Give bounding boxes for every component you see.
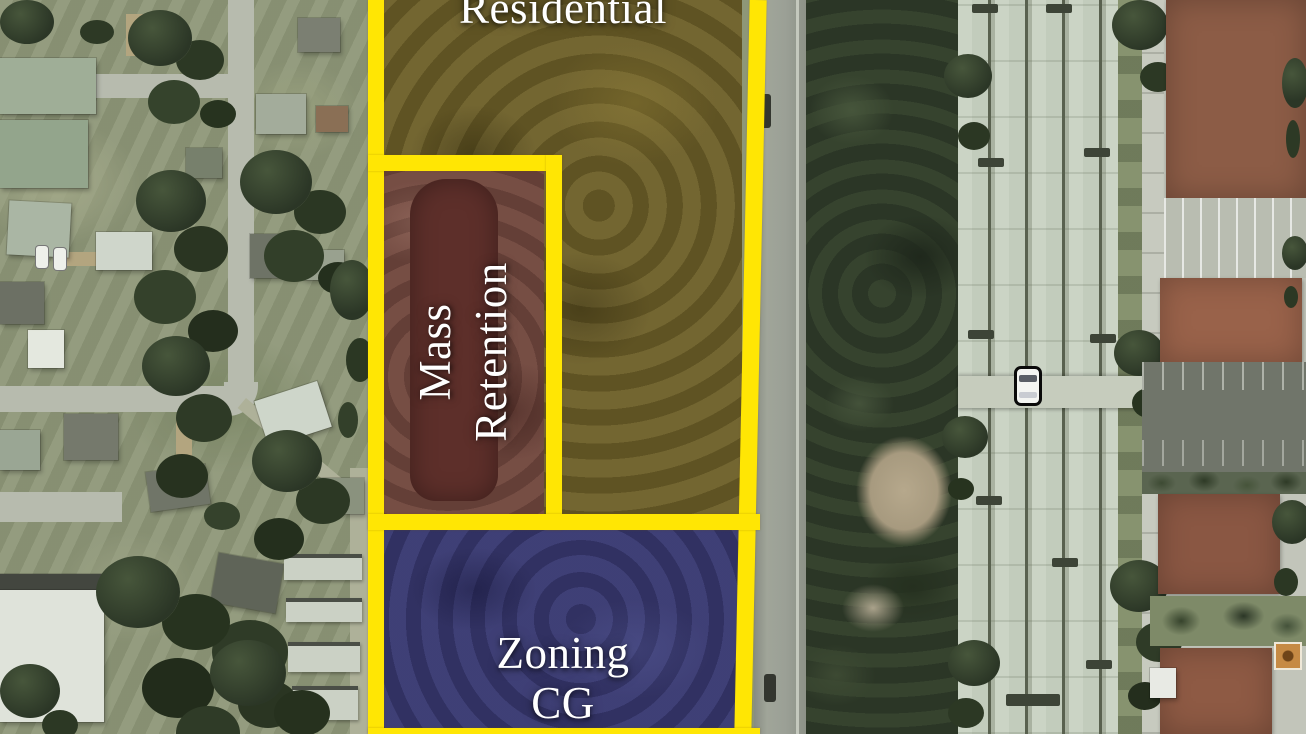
house-roof [250,234,304,278]
boundary-zoning-cg-top [368,514,760,530]
storage-door [978,158,1004,167]
house-roof [96,232,152,270]
car [36,246,48,268]
tree-cluster [1282,236,1306,270]
storage-driveway [958,376,1164,408]
tree-cluster [948,640,1000,686]
storage-door [972,4,998,13]
boundary-mass-retention-top [368,155,562,171]
parking-stub [0,492,122,522]
trailer-roof [284,554,362,580]
label-line: Retention [463,192,519,512]
label-line: Zoning [384,628,742,678]
storage-door [1046,4,1072,13]
house-roof [146,464,211,512]
house-roof [64,414,118,460]
building-roof [1160,278,1302,362]
tree-cluster [1112,0,1168,50]
trailer-roof [292,686,358,720]
house-roof [0,120,88,188]
utility-marker [1274,642,1302,670]
house-roof [186,148,222,178]
clearing [856,436,952,546]
tree-cluster [240,150,312,214]
label-line: Mass [407,192,463,512]
small-structure [1150,668,1176,698]
parcel-boundary-left [368,0,384,734]
storage-door [968,330,994,339]
tree-cluster [0,0,54,44]
storage-door [1084,148,1110,157]
parcel-boundary-bottom [368,728,760,734]
label-line: CG [384,678,742,728]
house-roof [0,430,40,470]
car [764,674,776,702]
trailer-roof [286,598,362,622]
tree-cluster [1272,500,1306,544]
car [54,248,66,270]
building-roof [1158,494,1280,594]
tree-cluster [96,556,180,628]
building-roof [1160,648,1272,734]
tree-cluster [252,430,322,492]
residential-label: Residential [384,0,742,31]
house-roof [0,282,44,324]
hedge [1142,472,1306,494]
tree-cluster [1282,58,1306,108]
clearing [842,584,904,632]
tree-cluster [142,336,210,396]
tree-cluster [210,640,286,706]
road-curb-line [796,0,799,734]
house-roof [298,18,340,52]
storage-door [1006,694,1060,706]
tree-cluster [944,54,992,98]
parking-lot [1164,198,1306,278]
hedge [1150,596,1306,646]
street [0,386,250,412]
storage-door [976,496,1002,505]
storage-door [1090,334,1116,343]
map-canvas[interactable]: Residential Mass Retention Zoning CG [0,0,1306,734]
trailer-roof [288,642,360,672]
tree-cluster [0,664,60,718]
warehouse-ridge [0,574,104,590]
boundary-mass-retention-right [546,155,562,530]
house-roof [28,330,64,368]
tree-cluster [128,10,192,66]
house-roof [316,106,348,132]
house-roof [0,58,96,114]
tree-cluster [136,170,206,232]
storage-door [1086,660,1112,669]
house-roof [318,478,364,514]
storage-door [1052,558,1078,567]
driveway [176,420,192,466]
white-car [1014,366,1042,406]
tree-cluster [942,416,988,458]
zoning-cg-label: Zoning CG [384,628,742,728]
parking-lot [1142,362,1306,472]
house-roof [256,94,306,134]
mass-retention-label: Mass Retention [407,192,519,512]
